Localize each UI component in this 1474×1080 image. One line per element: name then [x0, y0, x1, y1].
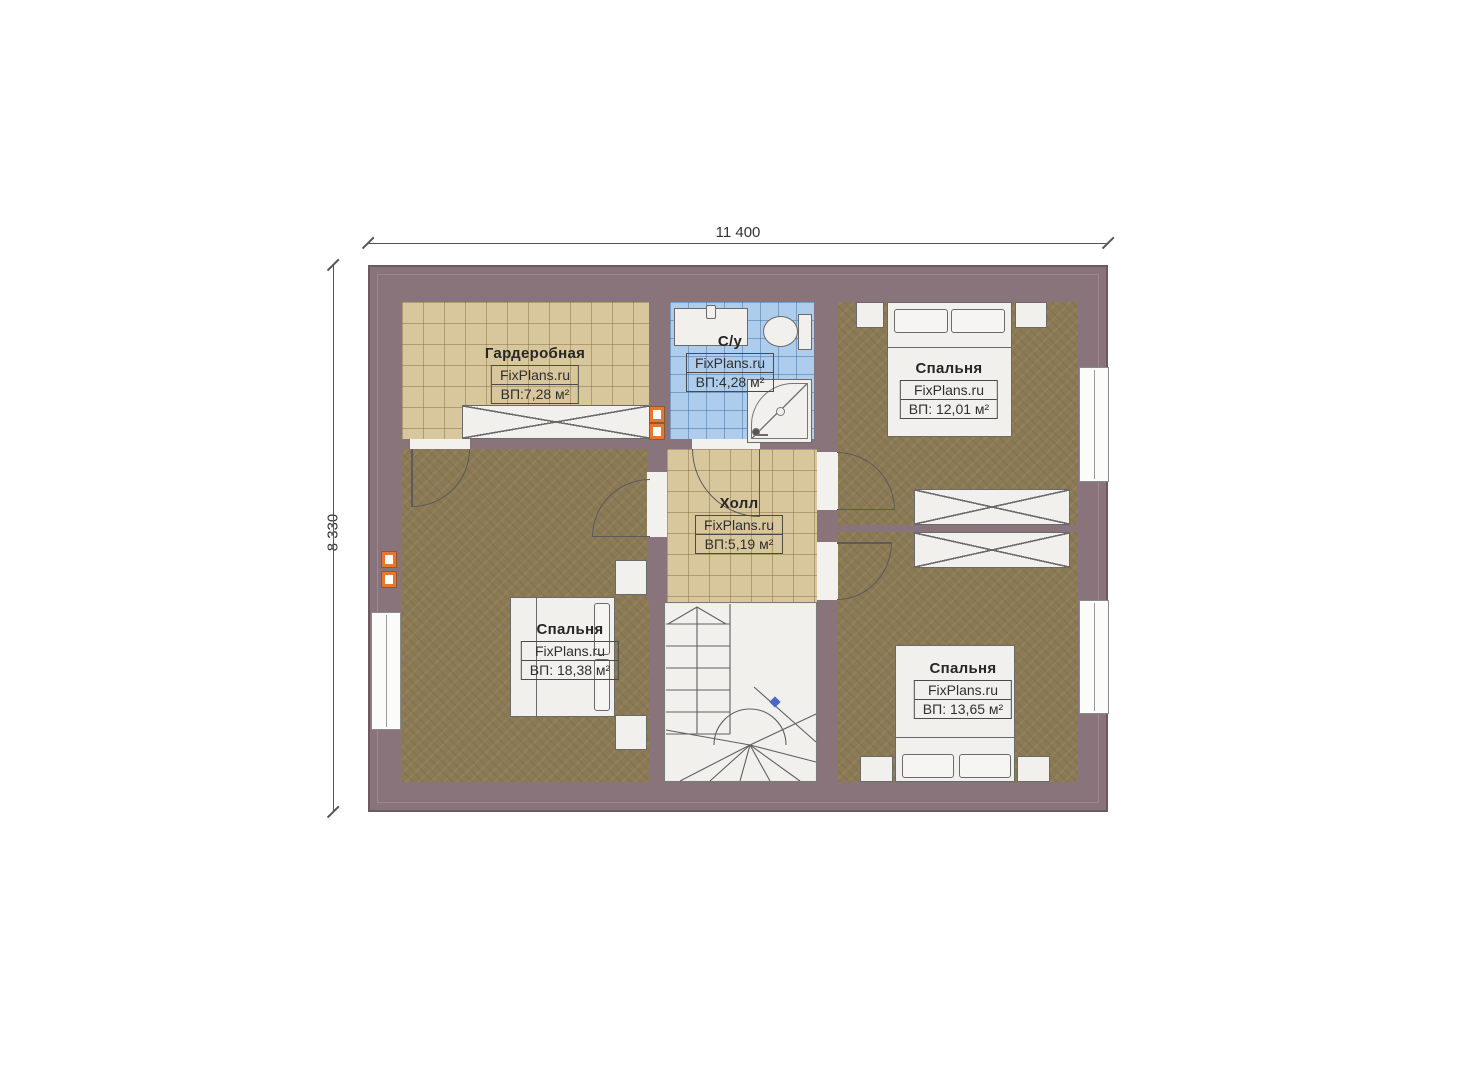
closet-bedroom-bottom-right	[914, 532, 1070, 568]
room-info-box: FixPlans.ru ВП: 12,01 м²	[900, 380, 998, 419]
window-glazing	[1094, 603, 1095, 711]
left-dimension-line	[333, 265, 334, 812]
brand-watermark: FixPlans.ru	[915, 681, 1011, 700]
room-label-bedroom-top-right: Спальня FixPlans.ru ВП: 12,01 м²	[900, 360, 998, 419]
room-label-hall: Холл FixPlans.ru ВП:5,19 м²	[695, 495, 783, 554]
window-glazing	[1094, 370, 1095, 479]
brand-watermark: FixPlans.ru	[492, 366, 578, 385]
door-leaf	[592, 536, 650, 538]
brand-watermark: FixPlans.ru	[687, 354, 773, 373]
pillow	[894, 309, 948, 333]
sink-tap	[706, 305, 716, 319]
wall-stairwell	[649, 602, 664, 782]
room-name: С/у	[686, 333, 774, 350]
nightstand	[860, 756, 893, 782]
room-area: ВП: 12,01 м²	[901, 400, 997, 418]
door-opening	[410, 439, 470, 449]
top-dimension-line	[368, 243, 1108, 244]
outlet-icon	[382, 572, 396, 587]
room-info-box: FixPlans.ru ВП: 13,65 м²	[914, 680, 1012, 719]
room-area: ВП: 13,65 м²	[915, 700, 1011, 718]
wall	[814, 302, 838, 439]
stair-marker-icon	[769, 696, 780, 707]
window-left	[371, 612, 401, 730]
room-label-bathroom: С/у FixPlans.ru ВП:4,28 м²	[686, 333, 774, 392]
brand-watermark: FixPlans.ru	[696, 516, 782, 535]
pillow	[951, 309, 1005, 333]
nightstand	[615, 715, 647, 750]
outlet-icon	[382, 552, 396, 567]
room-label-bedroom-left: Спальня FixPlans.ru ВП: 18,38 м²	[521, 621, 619, 680]
room-name: Спальня	[521, 621, 619, 638]
nightstand	[615, 560, 647, 595]
room-area: ВП: 18,38 м²	[522, 661, 618, 679]
window-right-top	[1079, 367, 1109, 482]
room-name: Спальня	[914, 660, 1012, 677]
room-info-box: FixPlans.ru ВП:7,28 м²	[491, 365, 579, 404]
window-glazing	[386, 615, 387, 727]
door-opening	[647, 472, 667, 537]
room-name: Спальня	[900, 360, 998, 377]
room-name: Холл	[695, 495, 783, 512]
door-opening	[817, 542, 838, 600]
shower-faucet-icon	[752, 428, 760, 436]
door-leaf	[837, 542, 892, 544]
wall	[470, 439, 692, 449]
top-dimension-label: 11 400	[368, 224, 1108, 241]
wall	[647, 537, 667, 602]
wall-bedroom-divider	[838, 525, 1078, 532]
pillow	[902, 754, 954, 778]
window-right-bottom	[1079, 600, 1109, 714]
closet-bedroom-top-right	[914, 489, 1070, 525]
toilet-tank	[798, 314, 812, 350]
nightstand	[1017, 756, 1050, 782]
staircase	[664, 602, 817, 782]
wall	[402, 439, 410, 449]
wall	[647, 449, 667, 472]
wall	[817, 600, 838, 782]
room-name: Гардеробная	[485, 345, 585, 362]
nightstand	[1015, 302, 1047, 328]
brand-watermark: FixPlans.ru	[901, 381, 997, 400]
outlet-icon	[650, 424, 664, 439]
stair-lines	[665, 603, 817, 782]
room-info-box: FixPlans.ru ВП: 18,38 м²	[521, 641, 619, 680]
outlet-icon	[650, 407, 664, 422]
floor-plan-canvas: 11 400 8 330	[0, 0, 1474, 1080]
room-area: ВП:5,19 м²	[696, 535, 782, 553]
room-area: ВП:7,28 м²	[492, 385, 578, 403]
room-info-box: FixPlans.ru ВП:4,28 м²	[686, 353, 774, 392]
wall	[817, 510, 838, 542]
door-opening	[817, 452, 838, 510]
brand-watermark: FixPlans.ru	[522, 642, 618, 661]
room-label-bedroom-bottom-right: Спальня FixPlans.ru ВП: 13,65 м²	[914, 660, 1012, 719]
room-label-wardrobe: Гардеробная FixPlans.ru ВП:7,28 м²	[485, 345, 585, 404]
blanket-line	[887, 347, 1012, 348]
nightstand	[856, 302, 884, 328]
pillow	[959, 754, 1011, 778]
room-area: ВП:4,28 м²	[687, 373, 773, 391]
door-leaf	[411, 449, 413, 507]
closet-wardrobe-room	[462, 405, 650, 439]
floor-plan: Гардеробная FixPlans.ru ВП:7,28 м² С/у F…	[368, 265, 1108, 812]
door-leaf	[837, 509, 895, 511]
shower-drain	[776, 407, 785, 416]
room-info-box: FixPlans.ru ВП:5,19 м²	[695, 515, 783, 554]
blanket-line	[895, 737, 1015, 738]
